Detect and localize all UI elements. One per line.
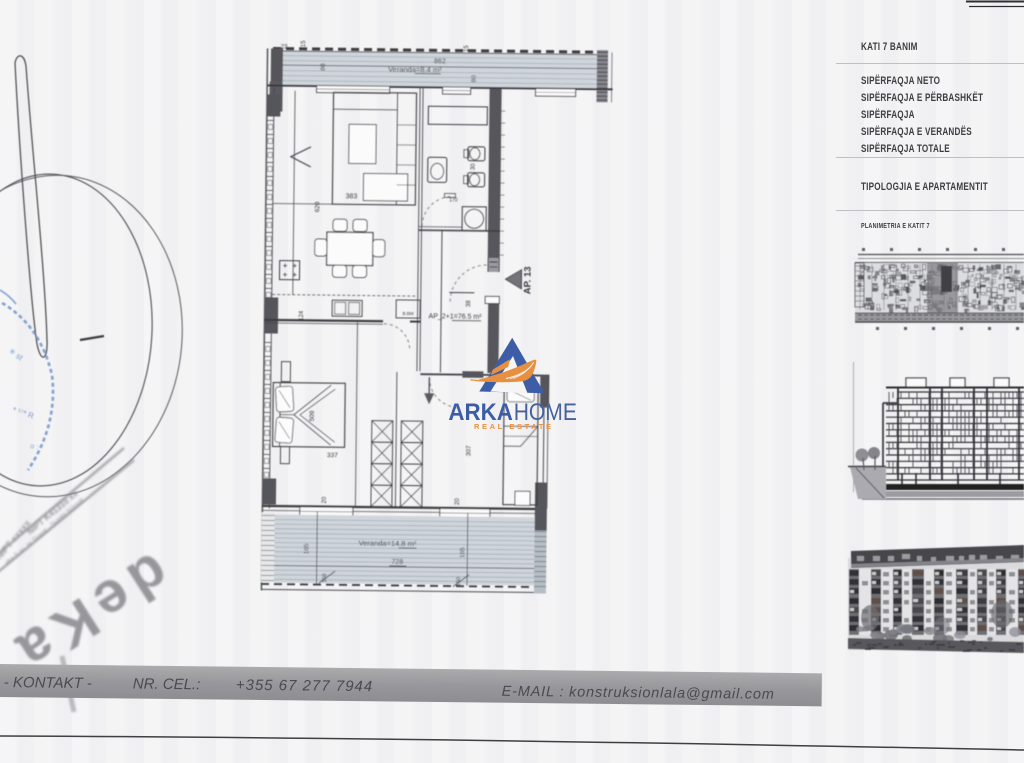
svg-text:509: 509 bbox=[309, 410, 316, 421]
svg-text:E-MAIL : konstruksionlala@gma: E-MAIL : konstruksionlala@gmail.com bbox=[502, 684, 775, 703]
svg-text:307: 307 bbox=[465, 445, 472, 456]
svg-text:SIPËRFAQJA E PËRBASHKËT: SIPËRFAQJA E PËRBASHKËT bbox=[861, 92, 983, 105]
svg-text:- KONTAKT -: - KONTAKT - bbox=[4, 674, 92, 692]
svg-text:α :: α : bbox=[30, 443, 39, 451]
svg-text:AP_2+1=76.5 m²: AP_2+1=76.5 m² bbox=[429, 313, 483, 321]
svg-text:20: 20 bbox=[322, 496, 328, 503]
svg-text:NR. CEL.:: NR. CEL.: bbox=[133, 676, 201, 694]
svg-text:PLANIMETRIA E KATIT 7: PLANIMETRIA E KATIT 7 bbox=[861, 222, 930, 230]
svg-text:* ¹⁷* R: * ¹⁷* R bbox=[11, 405, 35, 420]
svg-text:SIPËRFAQJA: SIPËRFAQJA bbox=[861, 109, 915, 122]
svg-text:+355 67 277 7944: +355 67 277 7944 bbox=[236, 677, 374, 696]
svg-text:20: 20 bbox=[455, 498, 461, 505]
svg-text:B.BM: B.BM bbox=[403, 311, 414, 316]
svg-text:620: 620 bbox=[314, 201, 321, 212]
svg-text:15: 15 bbox=[464, 45, 470, 52]
svg-text:15: 15 bbox=[301, 40, 307, 47]
svg-text:80: 80 bbox=[320, 63, 327, 71]
svg-text:38: 38 bbox=[466, 300, 472, 307]
svg-text:170: 170 bbox=[449, 197, 458, 203]
svg-text:KATI 7 BANIM: KATI 7 BANIM bbox=[861, 41, 918, 54]
svg-text:80: 80 bbox=[471, 75, 478, 83]
svg-text:Veranda=8.4 m²: Veranda=8.4 m² bbox=[388, 65, 442, 75]
svg-text:23: 23 bbox=[281, 45, 288, 51]
svg-text:TIPOLOGJIA E APARTAMENTIT: TIPOLOGJIA E APARTAMENTIT bbox=[861, 181, 988, 194]
svg-text:165: 165 bbox=[459, 547, 466, 558]
svg-text:SIPËRFAQJA NETO: SIPËRFAQJA NETO bbox=[861, 75, 940, 88]
svg-text:30: 30 bbox=[471, 163, 477, 170]
svg-text:ARKA: ARKA bbox=[448, 399, 512, 426]
svg-text:165: 165 bbox=[303, 543, 310, 554]
svg-text:SIPËRFAQJA TOTALE: SIPËRFAQJA TOTALE bbox=[861, 143, 950, 156]
svg-text:✳ st: ✳ st bbox=[7, 346, 25, 363]
svg-text:SIPËRFAQJA E VERANDËS: SIPËRFAQJA E VERANDËS bbox=[861, 126, 972, 139]
svg-text:728: 728 bbox=[391, 559, 403, 566]
svg-text:AP. 13: AP. 13 bbox=[522, 266, 533, 294]
svg-text:337: 337 bbox=[327, 452, 338, 459]
svg-text:Veranda=14.8 m²: Veranda=14.8 m² bbox=[359, 538, 417, 548]
svg-text:383: 383 bbox=[346, 193, 358, 200]
svg-text:REAL ESTATE: REAL ESTATE bbox=[474, 422, 551, 431]
svg-text:124: 124 bbox=[299, 310, 305, 321]
